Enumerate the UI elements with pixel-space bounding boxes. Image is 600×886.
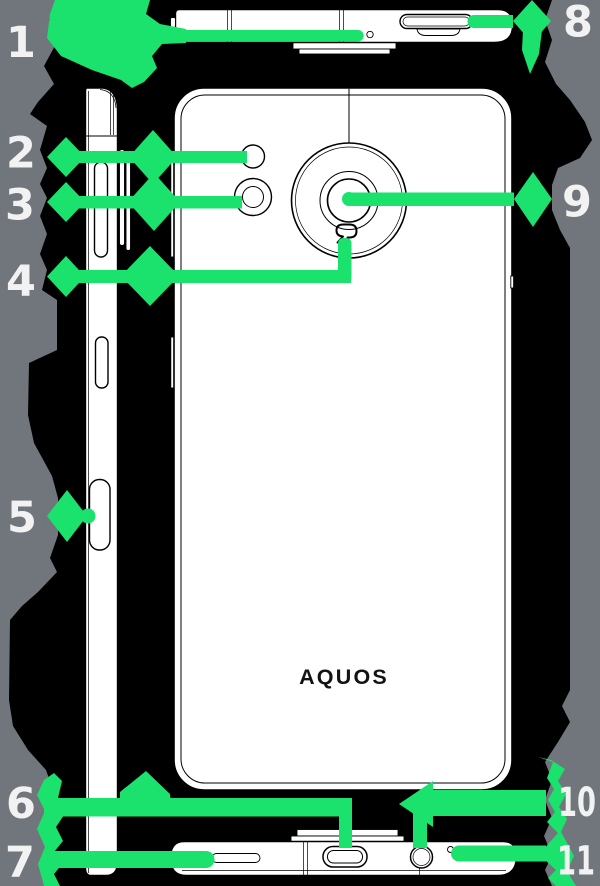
callout-8-label: 8 <box>563 0 593 48</box>
callout-6-label: 6 <box>6 779 36 829</box>
camera-bump-top-ledge <box>293 43 396 50</box>
camera-bump-top-plate <box>299 49 390 54</box>
speaker <box>212 854 260 863</box>
callout-11-pointer <box>451 846 546 862</box>
power-key <box>96 337 109 388</box>
sim-tray <box>400 15 473 29</box>
aquos-logo: AQUOS <box>299 665 389 689</box>
phone-hardware-diagram: AQUOS <box>0 0 600 886</box>
callout-2-label: 2 <box>6 129 36 179</box>
sim-tray-notch <box>417 29 460 36</box>
top-left-key-nub <box>171 18 176 28</box>
callout-11-label: 11 <box>557 839 595 885</box>
earphone-jack <box>411 846 433 868</box>
volume-key <box>95 162 108 257</box>
usb-type-c-port <box>323 847 367 868</box>
diagram-canvas: AQUOS <box>0 0 600 886</box>
callout-3-label: 3 <box>5 181 35 231</box>
callout-7-label: 7 <box>5 838 35 886</box>
top-mic-hole <box>367 31 373 37</box>
callout-4-label: 4 <box>6 257 36 307</box>
callout-10-label: 10 <box>558 780 596 826</box>
callout-9-label: 9 <box>562 178 592 228</box>
back-edge-right-tick <box>511 276 514 288</box>
callout-1-label: 1 <box>6 18 36 68</box>
callout-5-label: 5 <box>7 493 37 543</box>
